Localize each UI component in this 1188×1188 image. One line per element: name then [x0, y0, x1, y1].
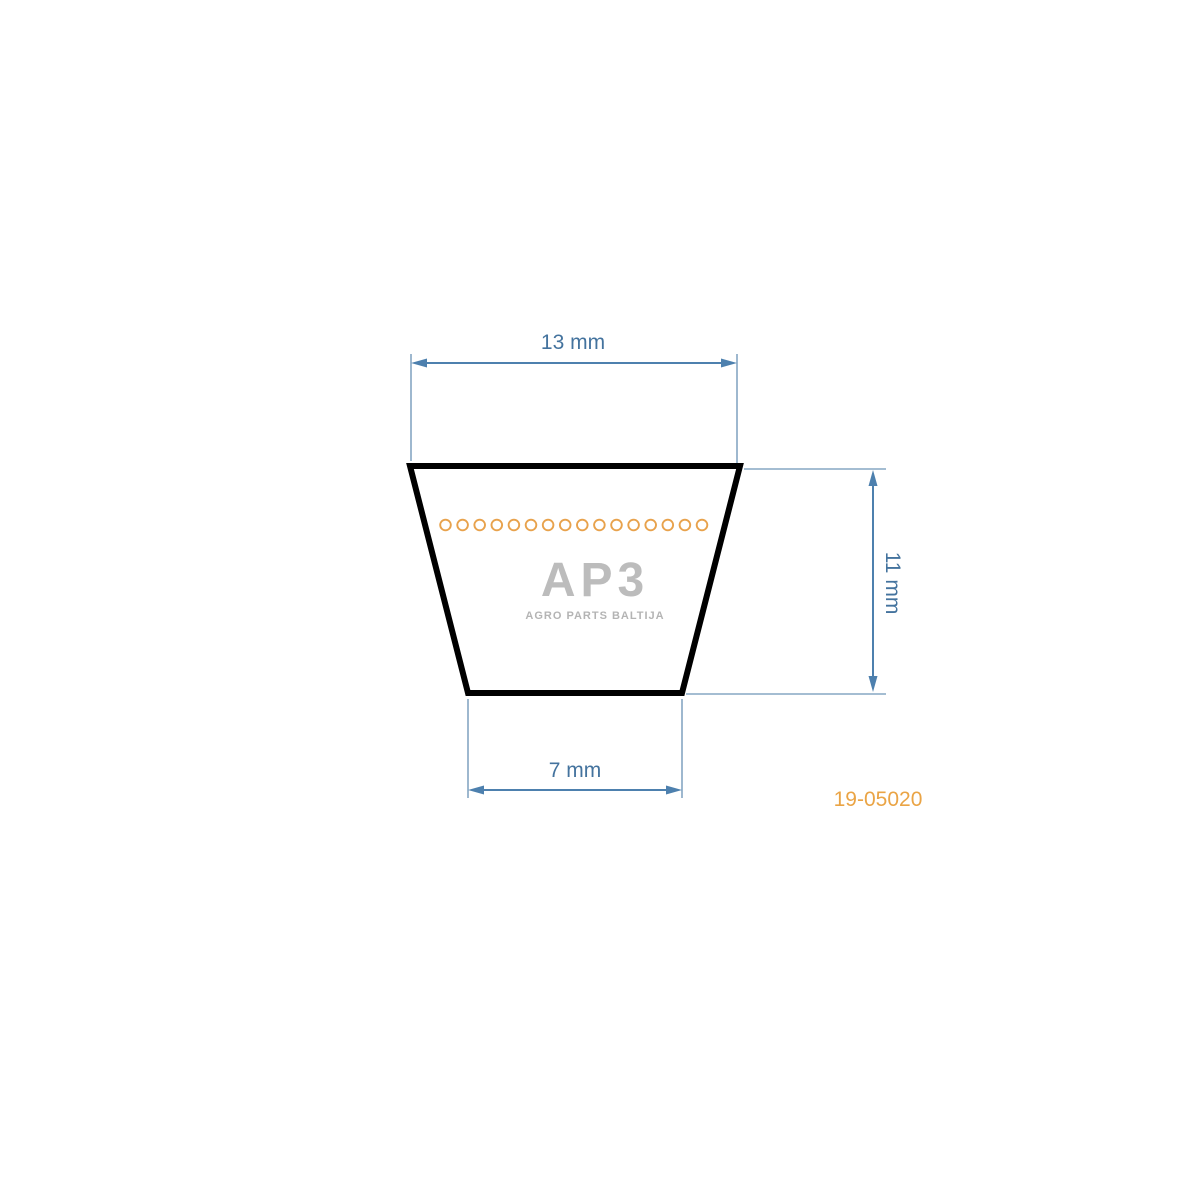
- watermark: AP3 AGRO PARTS BALTIJA: [525, 557, 664, 622]
- height-label: 11 mm: [880, 552, 904, 615]
- arrowhead-bottom-left-icon: [468, 786, 484, 795]
- part-number: 19-05020: [834, 788, 923, 812]
- apb-logo-subtitle: AGRO PARTS BALTIJA: [525, 610, 664, 622]
- arrowhead-height-bottom-icon: [869, 676, 878, 692]
- arrowhead-height-top-icon: [869, 470, 878, 486]
- arrowhead-top-right-icon: [721, 359, 737, 368]
- arrowhead-bottom-right-icon: [666, 786, 682, 795]
- top-width-label: 13 mm: [541, 331, 605, 355]
- bottom-width-label: 7 mm: [549, 759, 602, 783]
- apb-logo: AP3: [525, 557, 664, 605]
- arrowhead-top-left-icon: [411, 359, 427, 368]
- diagram-canvas: 13 mm 7 mm 11 mm AP3 AGRO PARTS BALTIJA …: [0, 0, 1188, 1188]
